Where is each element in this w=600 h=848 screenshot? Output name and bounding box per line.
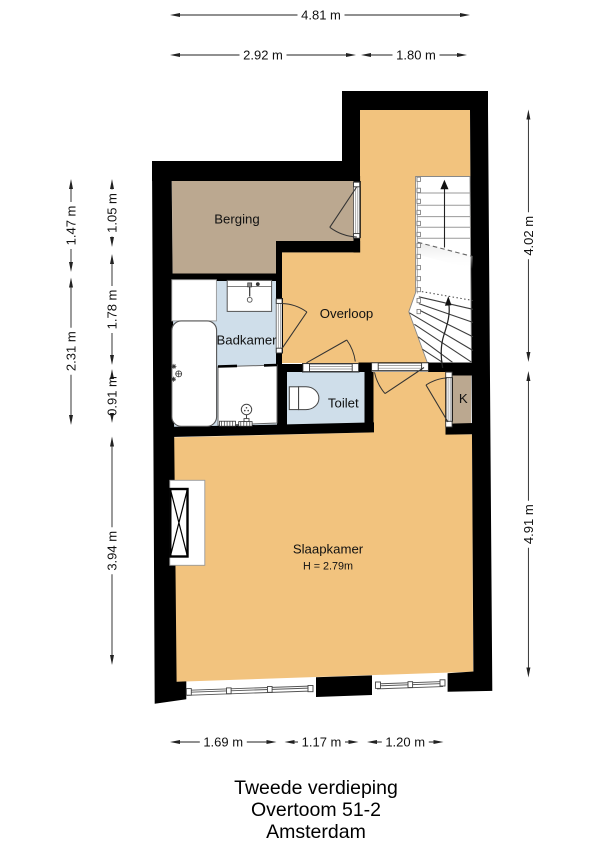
svg-text:1.47 m: 1.47 m	[64, 206, 79, 246]
svg-text:2.92 m: 2.92 m	[243, 48, 283, 63]
svg-text:1.17 m: 1.17 m	[302, 735, 342, 750]
svg-text:3.94 m: 3.94 m	[105, 531, 120, 571]
svg-text:Overtoom 51-2: Overtoom 51-2	[251, 799, 381, 821]
svg-text:2.31 m: 2.31 m	[64, 331, 79, 371]
svg-text:Toilet: Toilet	[328, 395, 359, 410]
svg-text:K: K	[459, 391, 468, 406]
svg-text:Tweede verdieping: Tweede verdieping	[234, 777, 398, 799]
svg-text:1.05 m: 1.05 m	[105, 193, 120, 233]
svg-text:4.02 m: 4.02 m	[521, 216, 536, 256]
svg-text:Slaapkamer: Slaapkamer	[293, 542, 364, 557]
svg-text:4.81 m: 4.81 m	[301, 8, 341, 23]
svg-text:Badkamer: Badkamer	[216, 332, 277, 347]
svg-text:4.91 m: 4.91 m	[521, 504, 536, 544]
svg-text:1.20 m: 1.20 m	[385, 735, 425, 750]
svg-text:H = 2.79m: H = 2.79m	[303, 561, 353, 573]
svg-text:Amsterdam: Amsterdam	[266, 821, 366, 843]
svg-text:Berging: Berging	[214, 212, 259, 227]
svg-text:0.91 m: 0.91 m	[105, 376, 120, 416]
svg-text:1.78 m: 1.78 m	[105, 290, 120, 330]
svg-text:1.80 m: 1.80 m	[396, 48, 436, 63]
svg-text:Overloop: Overloop	[320, 306, 374, 321]
svg-text:1.69 m: 1.69 m	[203, 735, 243, 750]
